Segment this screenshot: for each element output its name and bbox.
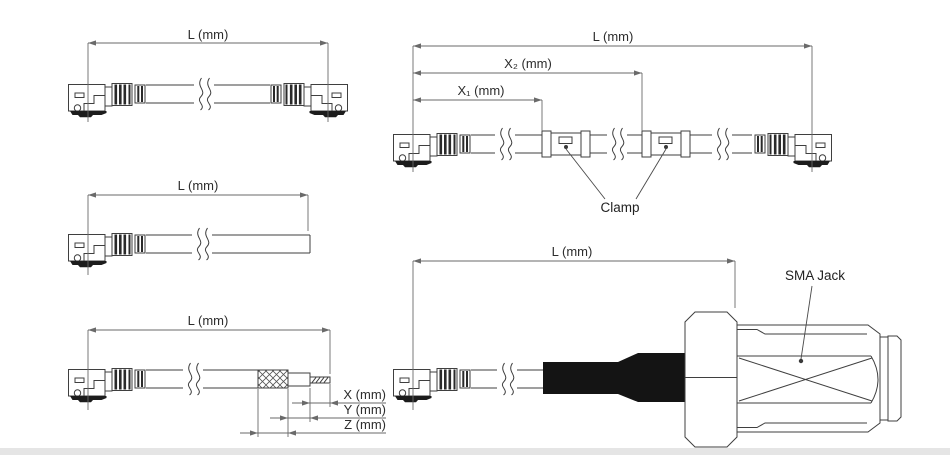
cable-break bbox=[495, 128, 515, 160]
rf-connector-left bbox=[69, 369, 146, 403]
cable-assembly-diagram: L (mm) L (mm) X₂ (mm) bbox=[0, 0, 950, 455]
cable-break bbox=[712, 128, 732, 160]
rf-connector-left bbox=[394, 134, 471, 168]
center-conductor bbox=[310, 377, 330, 383]
heat-shrink-boot bbox=[543, 353, 686, 402]
clamp-label: Clamp bbox=[600, 200, 639, 215]
dimension-x2: X₂ (mm) bbox=[413, 56, 642, 131]
rf-connector-right bbox=[271, 84, 348, 118]
sma-body bbox=[737, 325, 880, 432]
cable-break bbox=[607, 128, 627, 160]
dimension-label-z: Z (mm) bbox=[344, 417, 386, 432]
diagram-canvas: L (mm) L (mm) X₂ (mm) bbox=[0, 0, 950, 455]
rf-connector-right bbox=[755, 134, 832, 168]
cable-break bbox=[192, 228, 212, 260]
figure-cable-sma-jack: L (mm) SMA Jack bbox=[394, 244, 902, 447]
dimension-label-l: L (mm) bbox=[188, 313, 229, 328]
hex-nut bbox=[685, 312, 737, 447]
dimension-label-x: X (mm) bbox=[343, 387, 386, 402]
clamp-1 bbox=[542, 131, 590, 157]
dimension-label-l: L (mm) bbox=[188, 27, 229, 42]
bottom-strip bbox=[0, 448, 950, 455]
figure-cable-two-clamps: L (mm) X₂ (mm) X₁ (mm) Clamp bbox=[394, 29, 832, 215]
braid-section bbox=[258, 370, 288, 388]
clamp-2 bbox=[642, 131, 690, 157]
cable-break bbox=[497, 363, 517, 395]
leader-dot bbox=[799, 359, 803, 363]
rf-connector-left bbox=[394, 369, 471, 403]
dimension-label-x2: X₂ (mm) bbox=[504, 56, 552, 71]
leader-dot bbox=[664, 145, 668, 149]
figure-cable-open-end: L (mm) bbox=[69, 178, 311, 275]
rf-connector-left bbox=[69, 234, 146, 268]
sma-end-cap bbox=[880, 336, 901, 421]
leader-dot bbox=[564, 145, 568, 149]
dimension-label-l: L (mm) bbox=[552, 244, 593, 259]
dielectric-section bbox=[288, 373, 310, 386]
sma-jack-label: SMA Jack bbox=[785, 268, 845, 283]
dimension-l: L (mm) bbox=[88, 178, 308, 275]
dimension-label-l: L (mm) bbox=[593, 29, 634, 44]
figure-cable-both-connectors: L (mm) bbox=[69, 27, 348, 122]
cable-break bbox=[194, 78, 214, 110]
dimension-x1: X₁ (mm) bbox=[413, 83, 542, 131]
cable-break bbox=[183, 363, 203, 395]
dimension-l: L (mm) bbox=[88, 313, 330, 410]
rf-connector-left bbox=[69, 84, 146, 118]
dimension-label-x1: X₁ (mm) bbox=[458, 83, 505, 98]
dimension-label-y: Y (mm) bbox=[344, 402, 386, 417]
dimension-label-l: L (mm) bbox=[178, 178, 219, 193]
figure-cable-stripped-end: L (mm) X (mm) Y (mm) Z (mm) bbox=[69, 313, 387, 437]
